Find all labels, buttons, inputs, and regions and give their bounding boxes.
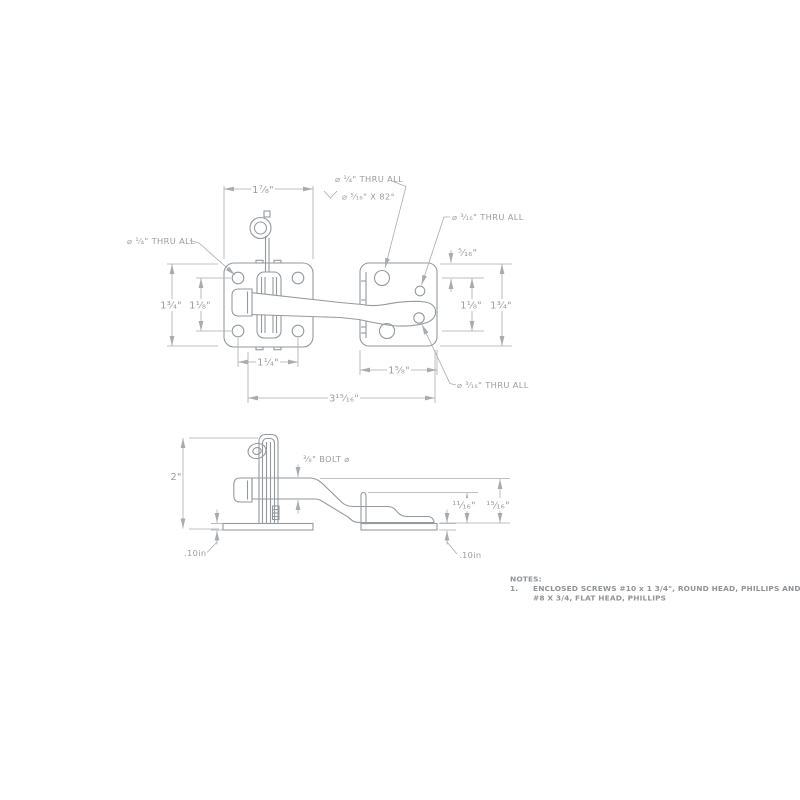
drawing-sheet: 1⁷⁄₈" 1³⁄₄" 1¹⁄₈" 1¹⁄₄" xyxy=(0,0,800,800)
callout-bolt-text: ³⁄₈" BOLT ⌀ xyxy=(303,454,350,464)
dim-text-right-width: 1⁵⁄₈" xyxy=(388,366,410,377)
dim-text-height: 2" xyxy=(170,472,181,483)
leader-line xyxy=(422,325,456,386)
dim-overall-height: 2" xyxy=(170,438,258,529)
dim-thickness-left: .10in xyxy=(184,510,224,559)
dim-text-bolt-height: ¹⁵⁄₁₆" xyxy=(486,501,510,512)
callout-countersink: ⌀ ¹⁄₄" THRU ALL ⌀ ⁵⁄₁₆" X 82° xyxy=(324,174,406,268)
side-view: 2" ³⁄₈" BOLT ⌀ .10in .10in xyxy=(170,435,510,561)
callout-small-hole-bottom: ⌀ ³⁄₁₆" THRU ALL xyxy=(422,325,529,391)
hook-tab xyxy=(264,211,270,217)
notes-item-number: 1. xyxy=(510,584,518,593)
top-view: 1⁷⁄₈" 1³⁄₄" 1¹⁄₈" 1¹⁄₄" xyxy=(127,174,529,405)
hook-bulb xyxy=(250,218,271,239)
screw-hole xyxy=(292,325,304,337)
dim-right-plate-width: 1⁵⁄₈" xyxy=(360,350,437,377)
dim-text-plate-width: 1⁷⁄₈" xyxy=(252,185,274,196)
callout-bolt-diameter: ³⁄₈" BOLT ⌀ xyxy=(298,454,350,514)
dim-text-right-height: 1³⁄₄" xyxy=(490,301,512,312)
callout-small-top-text: ⌀ ³⁄₁₆" THRU ALL xyxy=(452,212,524,222)
dim-right-hole-spacing-v: 1¹⁄₈" xyxy=(442,278,484,331)
hook-loop-inner xyxy=(252,447,262,456)
leader-line xyxy=(207,542,217,553)
knob-side xyxy=(234,478,252,502)
upright-channel xyxy=(259,435,278,524)
keeper-wall xyxy=(361,493,366,525)
dim-left-hole-spacing-v: 1¹⁄₈" xyxy=(189,278,231,331)
dim-text-th-left: .10in xyxy=(184,548,207,558)
dim-text-left-hole-v: 1¹⁄₈" xyxy=(189,301,211,312)
plate-tab xyxy=(274,347,281,350)
countersink-icon xyxy=(324,191,337,198)
leader-line xyxy=(190,241,235,276)
notes-title: NOTES: xyxy=(510,575,542,584)
dim-text-edge-offset: ⁵⁄₁₆" xyxy=(458,248,477,259)
notes-line2: #8 X 3/4, FLAT HEAD, PHILLIPS xyxy=(533,594,666,603)
callout-csk-line1: ⌀ ¹⁄₄" THRU ALL xyxy=(335,174,403,184)
screw-hole xyxy=(232,325,244,337)
plate-tab xyxy=(274,260,281,263)
plate-tab xyxy=(256,260,263,263)
hook-loop xyxy=(246,442,267,461)
latch-drawing: 1⁷⁄₈" 1³⁄₄" 1¹⁄₈" 1¹⁄₄" xyxy=(0,0,800,800)
dim-left-hole-spacing-h: 1¹⁄₄" xyxy=(238,338,298,369)
screw-hole xyxy=(292,272,304,284)
right-base-flange xyxy=(361,524,437,531)
dim-text-left-hole-h: 1¹⁄₄" xyxy=(257,358,279,369)
large-hole xyxy=(375,271,390,286)
callout-left-hole-text: ⌀ ¹⁄₄" THRU ALL xyxy=(127,236,195,246)
callout-csk-line2: ⌀ ⁵⁄₁₆" X 82° xyxy=(342,192,395,202)
left-base-flange xyxy=(223,524,313,531)
dim-text-left-height: 1³⁄₄" xyxy=(160,301,182,312)
leader-line xyxy=(422,217,451,285)
plate-tab xyxy=(256,347,263,350)
large-hole xyxy=(380,324,395,339)
dim-text-th-right: .10in xyxy=(459,550,482,560)
dim-text-keeper-height: ¹¹⁄₁₆" xyxy=(452,501,476,512)
dim-text-overall: 3¹⁵⁄₁₆" xyxy=(329,394,359,405)
notes-block: NOTES: 1. ENCLOSED SCREWS #10 x 1 3/4", … xyxy=(510,575,800,603)
small-hole xyxy=(415,286,425,296)
latch-knob xyxy=(232,289,252,316)
dim-text-right-hole-v: 1¹⁄₈" xyxy=(460,301,482,312)
hook-bulb-inner xyxy=(255,222,267,234)
leader-line xyxy=(447,542,457,554)
notes-line1: ENCLOSED SCREWS #10 x 1 3/4", ROUND HEAD… xyxy=(533,584,800,593)
dim-thickness-right: .10in xyxy=(439,510,482,561)
callout-small-bottom-text: ⌀ ³⁄₁₆" THRU ALL xyxy=(457,380,529,390)
dim-right-edge-offset: ⁵⁄₁₆" xyxy=(440,248,512,292)
callout-left-hole: ⌀ ¹⁄₄" THRU ALL xyxy=(127,236,235,275)
